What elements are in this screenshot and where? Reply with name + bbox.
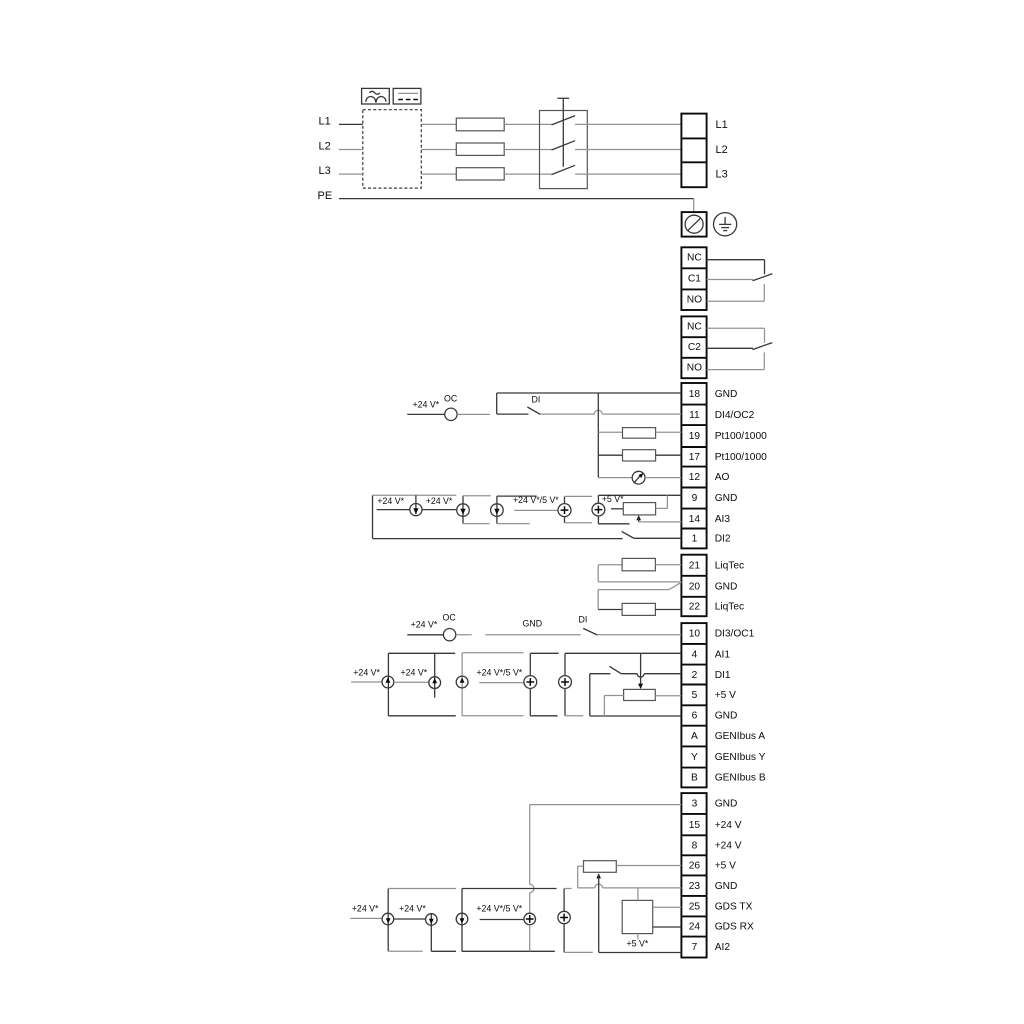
svg-text:21: 21: [689, 561, 701, 572]
svg-text:GND: GND: [715, 711, 738, 722]
svg-text:GDS RX: GDS RX: [715, 922, 754, 933]
svg-text:L2: L2: [716, 144, 728, 156]
svg-text:+24 V: +24 V: [715, 841, 742, 852]
svg-text:19: 19: [689, 431, 701, 442]
svg-text:25: 25: [689, 901, 701, 912]
svg-text:GENIbus B: GENIbus B: [715, 773, 766, 784]
svg-text:26: 26: [689, 861, 701, 872]
svg-text:OC: OC: [443, 613, 457, 623]
svg-text:DI: DI: [579, 615, 588, 625]
svg-text:4: 4: [692, 650, 698, 661]
svg-text:GENIbus A: GENIbus A: [715, 731, 766, 742]
svg-text:+24 V*/5 V*: +24 V*/5 V*: [513, 495, 559, 505]
svg-text:1: 1: [692, 534, 698, 545]
svg-text:GND: GND: [715, 389, 738, 400]
svg-text:+24 V*/5 V*: +24 V*/5 V*: [477, 667, 523, 677]
svg-text:+24 V*: +24 V*: [352, 904, 379, 914]
svg-text:L3: L3: [716, 169, 728, 181]
svg-text:OC: OC: [444, 393, 458, 403]
svg-text:10: 10: [689, 629, 701, 640]
svg-text:B: B: [691, 773, 698, 784]
svg-text:9: 9: [692, 493, 698, 504]
svg-text:+24 V*: +24 V*: [377, 496, 404, 506]
svg-text:DI3/OC1: DI3/OC1: [715, 629, 755, 640]
svg-text:L1: L1: [319, 115, 331, 127]
svg-text:DI1: DI1: [715, 670, 731, 681]
svg-text:AI1: AI1: [715, 650, 731, 661]
svg-text:17: 17: [689, 452, 701, 463]
svg-text:+24 V: +24 V: [715, 820, 742, 831]
svg-text:Pt100/1000: Pt100/1000: [715, 431, 767, 442]
svg-text:+24 V*: +24 V*: [353, 667, 380, 677]
svg-text:L1: L1: [716, 119, 728, 131]
svg-text:5: 5: [692, 690, 698, 701]
svg-text:GND: GND: [715, 881, 738, 892]
svg-text:AI3: AI3: [715, 514, 731, 525]
svg-text:GDS TX: GDS TX: [715, 901, 753, 912]
svg-text:14: 14: [689, 514, 701, 525]
svg-text:GENIbus Y: GENIbus Y: [715, 752, 766, 763]
svg-text:DI4/OC2: DI4/OC2: [715, 410, 755, 421]
svg-text:18: 18: [689, 389, 701, 400]
svg-text:2: 2: [692, 670, 698, 681]
svg-text:20: 20: [689, 582, 701, 593]
svg-text:+24 V*: +24 V*: [399, 904, 426, 914]
svg-text:L3: L3: [319, 165, 331, 177]
svg-text:Y: Y: [691, 752, 698, 763]
svg-text:+24 V*/5 V*: +24 V*/5 V*: [476, 904, 522, 914]
svg-text:+5 V: +5 V: [715, 690, 736, 701]
svg-text:6: 6: [692, 711, 698, 722]
svg-text:3: 3: [692, 799, 698, 810]
svg-text:+5 V*: +5 V*: [602, 494, 624, 504]
svg-text:NC: NC: [687, 322, 702, 333]
svg-text:A: A: [691, 731, 698, 742]
svg-text:7: 7: [692, 942, 698, 953]
svg-text:AO: AO: [715, 472, 730, 483]
svg-text:23: 23: [689, 881, 701, 892]
svg-text:12: 12: [689, 472, 701, 483]
svg-text:GND: GND: [715, 582, 738, 593]
svg-text:C2: C2: [688, 342, 701, 353]
svg-text:22: 22: [689, 602, 701, 613]
svg-text:GND: GND: [523, 619, 543, 629]
svg-text:NO: NO: [687, 294, 702, 305]
svg-text:DI: DI: [532, 394, 541, 404]
svg-text:NO: NO: [687, 363, 702, 374]
svg-text:LiqTec: LiqTec: [715, 561, 744, 572]
svg-text:L2: L2: [319, 140, 331, 152]
svg-text:C1: C1: [688, 274, 701, 285]
svg-text:24: 24: [689, 922, 701, 933]
svg-text:+24 V*: +24 V*: [426, 496, 453, 506]
svg-text:8: 8: [692, 841, 698, 852]
svg-text:Pt100/1000: Pt100/1000: [715, 452, 767, 463]
svg-text:+5 V: +5 V: [715, 861, 736, 872]
svg-text:GND: GND: [715, 799, 738, 810]
svg-text:+24 V*: +24 V*: [411, 620, 438, 630]
svg-text:PE: PE: [318, 190, 333, 202]
svg-text:+5 V*: +5 V*: [627, 938, 649, 948]
svg-text:LiqTec: LiqTec: [715, 602, 744, 613]
svg-text:DI2: DI2: [715, 534, 731, 545]
svg-text:+24 V*: +24 V*: [401, 667, 428, 677]
svg-text:NC: NC: [687, 253, 702, 264]
svg-text:+24 V*: +24 V*: [413, 399, 440, 409]
svg-text:15: 15: [689, 820, 701, 831]
svg-text:AI2: AI2: [715, 942, 731, 953]
svg-text:GND: GND: [715, 493, 738, 504]
svg-text:11: 11: [689, 410, 700, 421]
